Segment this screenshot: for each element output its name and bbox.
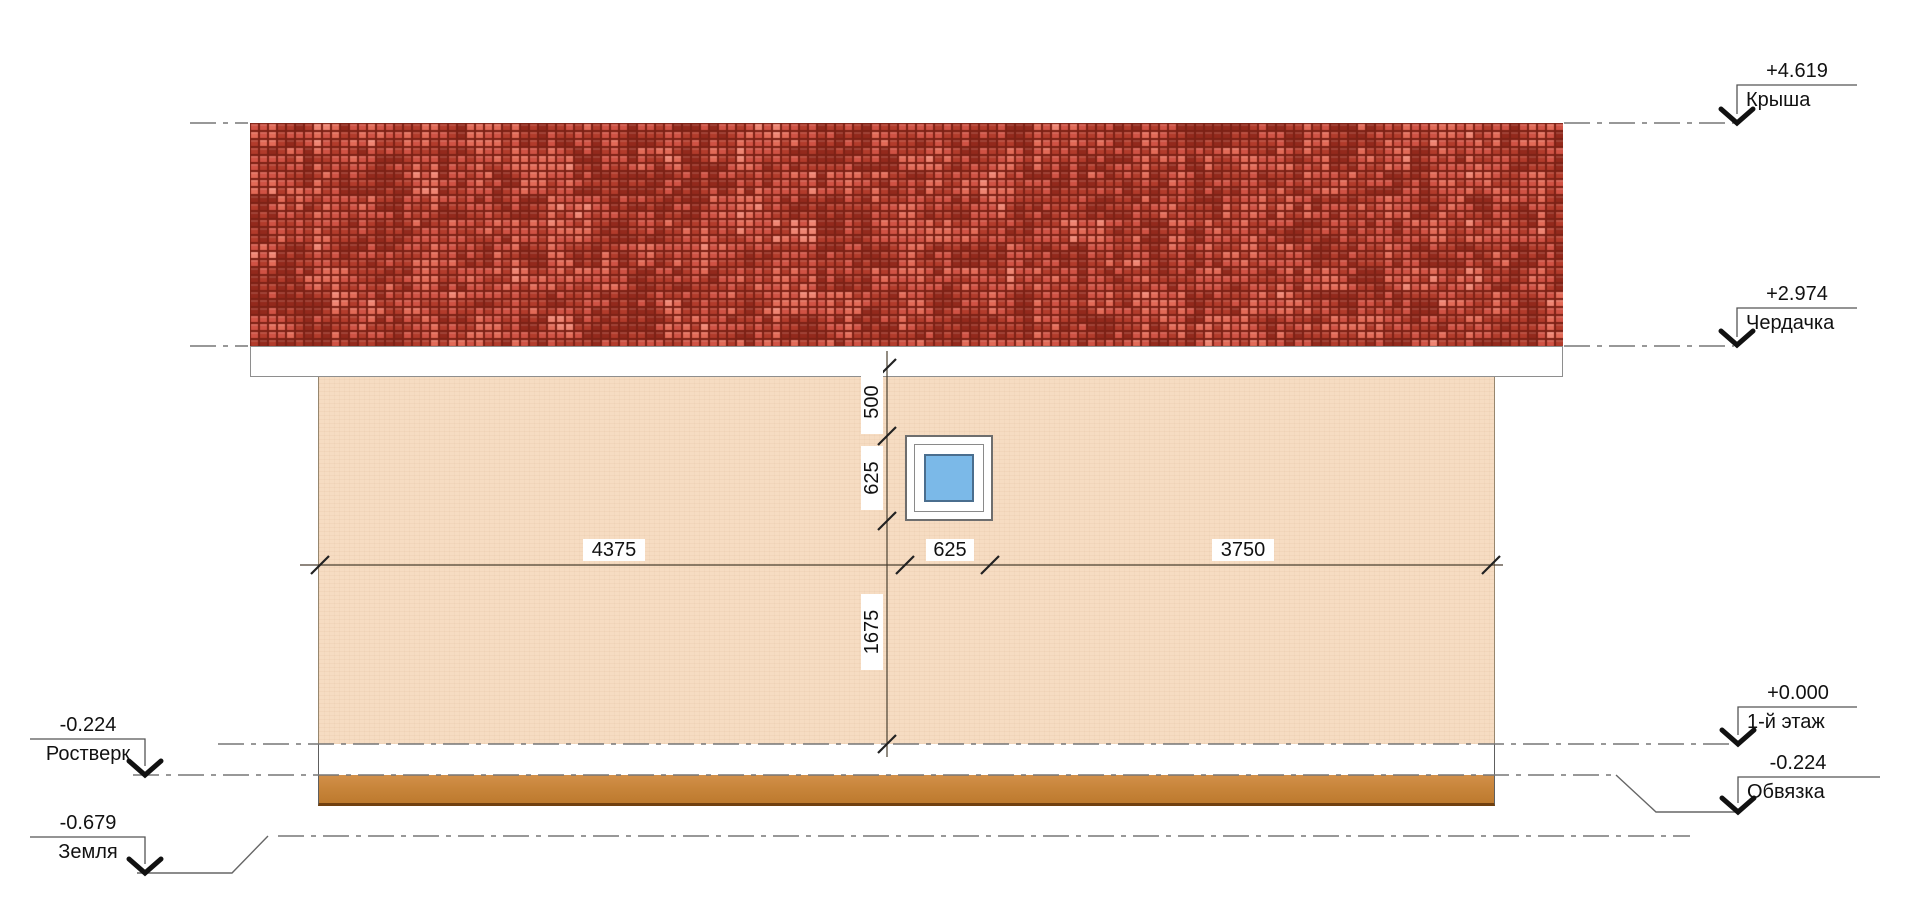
level-value-strapping: -0.224 bbox=[1738, 752, 1858, 774]
level-label-attic: Чердачка bbox=[1746, 312, 1834, 334]
dim-vertical-1675: 1675 bbox=[861, 594, 883, 670]
level-arrow-icons bbox=[129, 109, 1754, 873]
level-value-ground: -0.679 bbox=[30, 812, 146, 834]
level-value-roof: +4.619 bbox=[1737, 60, 1857, 82]
dim-horizontal-3750: 3750 bbox=[1212, 539, 1274, 561]
dim-horizontal-4375: 4375 bbox=[583, 539, 645, 561]
dim-vertical-500: 500 bbox=[861, 370, 883, 434]
level-value-grillage: -0.224 bbox=[30, 714, 146, 736]
dimension-lines bbox=[300, 351, 1503, 757]
level-label-ground: Земля bbox=[30, 841, 146, 863]
datum-connectors bbox=[137, 775, 1736, 873]
marker-brackets bbox=[30, 85, 1880, 864]
level-value-floor1: +0.000 bbox=[1738, 682, 1858, 704]
linework-overlay bbox=[0, 0, 1920, 922]
dimension-ticks bbox=[311, 359, 1500, 753]
level-label-strapping: Обвязка bbox=[1747, 781, 1825, 803]
dim-horizontal-625: 625 bbox=[926, 539, 974, 561]
elevation-drawing-page: { "drawing": { "type": "house-side-eleva… bbox=[0, 0, 1920, 922]
level-datum-lines bbox=[133, 123, 1736, 836]
dim-vertical-625: 625 bbox=[861, 446, 883, 510]
level-label-floor1: 1-й этаж bbox=[1747, 711, 1825, 733]
level-label-roof: Крыша bbox=[1746, 89, 1810, 111]
level-label-grillage: Ростверк bbox=[30, 743, 146, 765]
level-value-attic: +2.974 bbox=[1737, 283, 1857, 305]
